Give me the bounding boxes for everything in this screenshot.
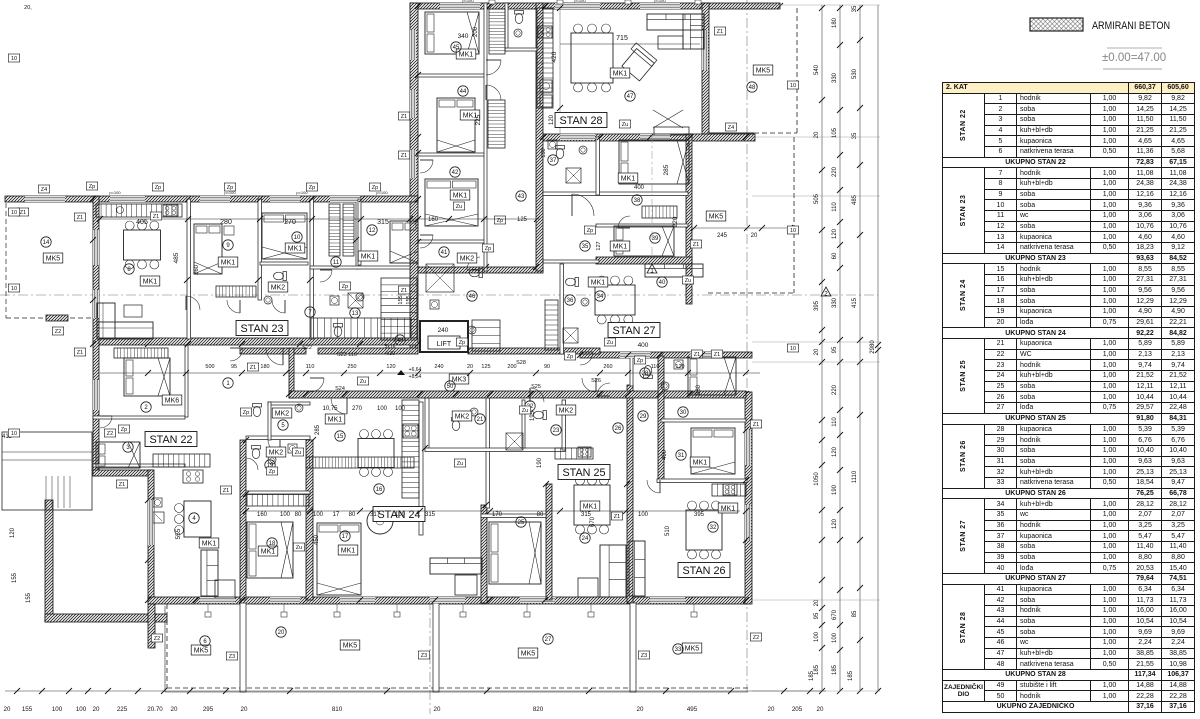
svg-text:50: 50 (447, 384, 454, 390)
svg-text:Z1: Z1 (153, 214, 159, 220)
svg-text:190: 190 (832, 484, 838, 495)
svg-text:MK5: MK5 (709, 214, 724, 221)
svg-text:130: 130 (541, 148, 547, 157)
svg-text:555: 555 (175, 528, 182, 539)
svg-text:100: 100 (814, 631, 820, 642)
svg-text:260: 260 (603, 364, 612, 370)
svg-text:100: 100 (395, 512, 406, 518)
svg-text:32: 32 (710, 525, 717, 531)
svg-text:Zu: Zu (622, 122, 628, 128)
svg-text:155: 155 (26, 592, 32, 603)
svg-text:110: 110 (832, 202, 838, 212)
svg-text:MK1: MK1 (288, 246, 303, 253)
svg-text:MK6: MK6 (165, 398, 180, 405)
svg-text:315: 315 (425, 512, 436, 518)
svg-text:100: 100 (313, 512, 324, 518)
svg-text:S24: S24 (335, 386, 345, 392)
svg-text:Z1: Z1 (401, 153, 407, 159)
svg-text:340: 340 (458, 33, 469, 40)
svg-text:330: 330 (832, 297, 838, 308)
svg-text:25: 25 (518, 520, 525, 526)
svg-text:280: 280 (220, 219, 232, 226)
svg-text:220: 220 (832, 166, 838, 177)
svg-text:Z1: Z1 (401, 288, 407, 294)
svg-text:820: 820 (533, 706, 544, 713)
svg-text:34: 34 (597, 294, 604, 300)
svg-text:27: 27 (545, 637, 552, 643)
svg-text:20: 20 (814, 348, 820, 355)
svg-text:20: 20 (814, 131, 820, 138)
svg-text:185: 185 (832, 664, 838, 675)
svg-text:STAN 26: STAN 26 (682, 565, 725, 577)
svg-text:11: 11 (333, 260, 340, 266)
svg-text:35: 35 (852, 5, 858, 12)
svg-text:MK1: MK1 (459, 52, 474, 59)
svg-text:STAN 27: STAN 27 (612, 325, 655, 337)
svg-text:120: 120 (832, 228, 838, 239)
svg-text:155: 155 (406, 295, 412, 304)
svg-text:105: 105 (832, 127, 838, 138)
svg-text:STAN 28: STAN 28 (559, 115, 602, 127)
svg-text:10: 10 (11, 56, 17, 62)
svg-text:+8,54: +8,54 (409, 374, 422, 380)
svg-text:MK2: MK2 (460, 256, 475, 263)
svg-text:42: 42 (452, 170, 459, 176)
svg-text:Z2: Z2 (55, 329, 61, 335)
svg-text:MK2: MK2 (559, 408, 574, 415)
svg-text:120: 120 (832, 446, 838, 457)
svg-text:31: 31 (678, 453, 685, 459)
svg-text:90: 90 (544, 364, 550, 370)
svg-text:MK1: MK1 (143, 279, 158, 286)
svg-text:155: 155 (22, 706, 33, 713)
svg-text:13: 13 (352, 311, 359, 317)
svg-text:670: 670 (832, 609, 838, 620)
svg-text:Z1: Z1 (77, 350, 83, 356)
svg-text:20: 20 (171, 706, 178, 713)
svg-text:Zu: Zu (360, 379, 366, 385)
svg-text:Zu: Zu (296, 545, 302, 551)
svg-text:Zp: Zp (485, 246, 491, 252)
svg-text:37: 37 (550, 158, 557, 164)
svg-text:220: 220 (672, 216, 679, 227)
svg-text:p=100: p=100 (654, 0, 666, 3)
svg-text:540: 540 (814, 64, 820, 75)
svg-text:Zu: Zu (456, 204, 462, 210)
svg-text:10: 10 (11, 431, 17, 437)
svg-text:S26: S26 (591, 378, 601, 384)
svg-text:16: 16 (376, 487, 383, 493)
svg-text:Z1: Z1 (714, 352, 720, 358)
svg-text:43: 43 (518, 194, 525, 200)
svg-text:26: 26 (615, 426, 622, 432)
svg-text:Z2: Z2 (753, 635, 759, 641)
svg-text:110: 110 (306, 364, 315, 370)
svg-text:MK2: MK2 (455, 414, 470, 421)
svg-text:Z3: Z3 (229, 654, 235, 660)
svg-text:MK1: MK1 (341, 548, 356, 555)
svg-text:Z2: Z2 (154, 636, 160, 642)
svg-text:STAN 22: STAN 22 (149, 434, 192, 446)
svg-text:Zu: Zu (522, 408, 528, 414)
svg-text:400: 400 (662, 449, 668, 460)
svg-text:MK1: MK1 (721, 506, 736, 513)
svg-text:Z3: Z3 (641, 653, 647, 659)
svg-text:20: 20 (241, 706, 248, 713)
svg-text:Zp: Zp (269, 469, 275, 475)
svg-text:Zp: Zp (155, 185, 161, 191)
svg-text:10: 10 (790, 83, 796, 89)
svg-text:MK2: MK2 (271, 285, 286, 292)
svg-text:17: 17 (333, 512, 340, 518)
svg-text:MK1: MK1 (693, 460, 708, 467)
svg-text:Zp: Zp (567, 354, 573, 360)
svg-text:100: 100 (76, 706, 87, 713)
svg-text:85: 85 (852, 610, 858, 617)
svg-text:10,75: 10,75 (322, 406, 338, 412)
svg-text:155: 155 (398, 295, 404, 304)
svg-text:505: 505 (814, 193, 820, 204)
svg-text:395: 395 (694, 512, 705, 518)
svg-text:285: 285 (663, 164, 670, 175)
svg-text:45: 45 (453, 45, 460, 51)
svg-text:Z2: Z2 (107, 431, 113, 437)
svg-text:120: 120 (832, 518, 838, 529)
svg-text:44: 44 (460, 89, 467, 95)
svg-text:S28: S28 (516, 360, 526, 366)
svg-text:41: 41 (441, 250, 448, 256)
svg-text:MK1: MK1 (328, 417, 343, 424)
svg-text:Z1: Z1 (717, 29, 723, 35)
svg-text:±0.00=47.00: ±0.00=47.00 (1102, 52, 1166, 64)
svg-text:500: 500 (205, 364, 214, 370)
svg-text:80: 80 (537, 512, 544, 518)
svg-text:Zp: Zp (309, 185, 315, 191)
svg-text:127: 127 (596, 241, 602, 250)
svg-text:10: 10 (294, 235, 301, 241)
svg-text:Zu: Zu (295, 450, 301, 456)
svg-text:60: 60 (832, 252, 838, 259)
svg-text:p=100: p=100 (224, 190, 236, 195)
svg-text:510: 510 (665, 525, 671, 536)
svg-text:220: 220 (832, 384, 838, 395)
svg-text:MK1: MK1 (613, 71, 628, 78)
svg-text:MK1: MK1 (202, 541, 217, 548)
svg-text:21: 21 (477, 417, 484, 423)
svg-text:MK2: MK2 (269, 450, 284, 457)
svg-text:715: 715 (616, 35, 628, 42)
svg-text:14: 14 (43, 240, 50, 246)
svg-text:395: 395 (814, 300, 820, 311)
svg-text:330: 330 (832, 72, 838, 83)
svg-text:20: 20 (637, 706, 644, 713)
svg-text:30: 30 (680, 410, 687, 416)
svg-text:185: 185 (848, 670, 854, 681)
svg-text:S25: S25 (531, 384, 541, 390)
svg-text:10: 10 (790, 228, 796, 234)
svg-text:Z1: Z1 (753, 422, 759, 428)
svg-text:Z1: Z1 (20, 210, 26, 216)
svg-text:Z1: Z1 (614, 514, 620, 520)
svg-text:MK5: MK5 (685, 646, 700, 653)
svg-text:205: 205 (792, 706, 803, 713)
svg-text:100: 100 (638, 512, 649, 518)
svg-text:20: 20 (467, 364, 473, 370)
svg-text:160: 160 (257, 512, 268, 518)
svg-text:1110: 1110 (852, 470, 858, 483)
svg-text:100: 100 (52, 706, 63, 713)
svg-text:Zp: Zp (587, 228, 593, 234)
svg-text:p=100: p=100 (574, 0, 586, 3)
svg-text:5x16: 5x16 (385, 344, 396, 350)
svg-text:49: 49 (397, 338, 404, 344)
svg-text:240: 240 (438, 327, 449, 334)
svg-text:400: 400 (634, 185, 645, 191)
svg-text:110: 110 (832, 417, 838, 427)
svg-text:4/30: 4/30 (385, 351, 395, 357)
svg-text:405: 405 (136, 219, 148, 226)
svg-text:Z1: Z1 (77, 215, 83, 221)
svg-text:17: 17 (342, 534, 349, 540)
svg-text:MK5: MK5 (194, 648, 209, 655)
svg-text:317: 317 (370, 512, 381, 518)
svg-text:1050: 1050 (814, 472, 820, 486)
svg-text:20.70: 20.70 (147, 706, 163, 713)
svg-text:46: 46 (469, 294, 476, 300)
svg-text:20,: 20, (24, 5, 32, 11)
svg-text:95: 95 (814, 612, 820, 619)
svg-text:270: 270 (284, 219, 296, 226)
svg-text:110: 110 (651, 364, 660, 370)
svg-text:285: 285 (315, 424, 321, 435)
svg-text:Zp: Zp (637, 358, 643, 364)
svg-text:80: 80 (349, 512, 356, 518)
svg-text:24: 24 (582, 536, 589, 542)
svg-text:+6,64: +6,64 (409, 367, 422, 373)
svg-text:39: 39 (652, 236, 659, 242)
svg-text:MK2: MK2 (275, 411, 290, 418)
svg-text:MK1: MK1 (453, 193, 468, 200)
svg-text:MK1: MK1 (221, 260, 236, 267)
svg-text:185: 185 (809, 670, 815, 681)
svg-text:Zp: Zp (243, 410, 249, 416)
svg-text:120: 120 (675, 364, 684, 370)
svg-text:12: 12 (369, 228, 376, 234)
svg-text:100: 100 (832, 632, 838, 643)
svg-text:Z4: Z4 (728, 125, 734, 131)
svg-text:Zu: Zu (607, 340, 613, 346)
svg-text:p=100: p=100 (376, 190, 388, 195)
svg-text:S23 110: S23 110 (337, 352, 357, 358)
svg-text:47: 47 (627, 94, 634, 100)
svg-text:28: 28 (642, 371, 649, 377)
svg-text:240: 240 (434, 364, 443, 370)
svg-text:20: 20 (4, 706, 11, 713)
svg-text:260: 260 (194, 264, 200, 275)
svg-text:100: 100 (280, 512, 291, 518)
svg-text:250: 250 (347, 364, 356, 370)
svg-text:33: 33 (675, 647, 682, 653)
svg-text:MK5: MK5 (521, 651, 536, 658)
svg-text:450: 450 (314, 534, 320, 545)
svg-text:Z1: Z1 (401, 114, 407, 120)
svg-text:190: 190 (537, 457, 543, 468)
svg-text:100: 100 (395, 406, 406, 412)
svg-text:315: 315 (377, 219, 389, 226)
svg-text:18: 18 (269, 541, 276, 547)
svg-text:245: 245 (717, 233, 728, 239)
svg-text:p=100: p=100 (462, 0, 474, 3)
svg-text:Zp: Zp (459, 340, 465, 346)
svg-text:Zp: Zp (342, 284, 348, 290)
svg-text:Z1: Z1 (693, 242, 699, 248)
svg-text:225: 225 (475, 114, 482, 125)
svg-text:MK5: MK5 (756, 68, 771, 75)
svg-text:2980: 2980 (870, 340, 876, 354)
svg-text:225: 225 (117, 706, 128, 713)
svg-text:20: 20 (768, 706, 775, 713)
svg-text:415: 415 (852, 297, 858, 308)
svg-text:380: 380 (696, 384, 702, 395)
svg-text:95: 95 (231, 364, 237, 370)
svg-text:485: 485 (173, 252, 180, 263)
svg-text:20: 20 (434, 706, 441, 713)
svg-text:670: 670 (590, 516, 596, 527)
svg-text:MK1: MK1 (361, 254, 376, 261)
svg-text:36: 36 (567, 298, 574, 304)
svg-text:10: 10 (790, 346, 796, 352)
svg-text:20: 20 (93, 706, 100, 713)
svg-text:180: 180 (260, 364, 269, 370)
svg-text:10: 10 (11, 210, 17, 216)
svg-text:80: 80 (295, 512, 302, 518)
svg-text:Zp: Zp (121, 427, 127, 433)
svg-text:35: 35 (582, 244, 589, 250)
svg-text:120: 120 (10, 527, 16, 538)
svg-text:40: 40 (659, 280, 666, 286)
svg-text:120: 120 (386, 364, 395, 370)
svg-text:420: 420 (551, 51, 558, 62)
svg-text:Z3: Z3 (421, 653, 427, 659)
svg-text:Z1: Z1 (694, 352, 700, 358)
svg-text:MK1: MK1 (591, 280, 606, 287)
svg-text:Z1: Z1 (250, 365, 256, 371)
svg-text:p=100: p=100 (109, 190, 121, 195)
svg-text:Zp: Zp (89, 184, 95, 190)
svg-text:100: 100 (377, 406, 388, 412)
svg-text:35: 35 (852, 132, 858, 139)
svg-text:495: 495 (687, 706, 698, 713)
svg-text:120: 120 (549, 114, 555, 125)
svg-text:200: 200 (473, 26, 479, 37)
svg-text:S22: S22 (302, 345, 312, 351)
svg-text:400: 400 (638, 342, 649, 349)
svg-text:125: 125 (481, 364, 490, 370)
svg-text:29: 29 (640, 414, 647, 420)
svg-text:MK5: MK5 (343, 643, 358, 650)
svg-text:38: 38 (634, 198, 641, 204)
svg-text:295: 295 (203, 706, 214, 713)
svg-text:ARMIRANI BETON: ARMIRANI BETON (1092, 20, 1170, 32)
svg-text:20: 20 (751, 233, 758, 239)
svg-text:160: 160 (428, 217, 439, 223)
svg-text:STAN 23: STAN 23 (240, 323, 283, 335)
svg-text:LIFT: LIFT (437, 341, 452, 348)
svg-text:48: 48 (749, 85, 756, 91)
svg-text:MK1: MK1 (583, 504, 598, 511)
svg-text:810: 810 (332, 706, 343, 713)
svg-text:MK1: MK1 (621, 176, 636, 183)
svg-text:170: 170 (492, 512, 503, 518)
svg-text:125: 125 (517, 217, 528, 223)
svg-text:20: 20 (278, 630, 285, 636)
svg-text:180: 180 (832, 17, 838, 28)
svg-text:MK5: MK5 (46, 256, 61, 263)
svg-text:10: 10 (11, 286, 17, 292)
svg-text:STAN 25: STAN 25 (562, 467, 605, 479)
svg-text:20: 20 (817, 706, 824, 713)
svg-text:Z4: Z4 (41, 187, 47, 193)
svg-text:95: 95 (832, 346, 838, 353)
svg-text:p=100: p=100 (296, 190, 308, 195)
svg-text:155: 155 (12, 572, 18, 583)
svg-text:270: 270 (352, 406, 363, 412)
svg-text:Z1: Z1 (223, 488, 229, 494)
svg-text:Zu: Zu (457, 461, 463, 467)
svg-text:530: 530 (852, 68, 858, 79)
svg-text:MK1: MK1 (613, 244, 628, 251)
svg-text:Z1: Z1 (119, 482, 125, 488)
svg-text:Zu: Zu (685, 278, 691, 284)
svg-text:MK1: MK1 (261, 549, 276, 556)
svg-text:15: 15 (337, 434, 344, 440)
svg-text:23: 23 (553, 428, 560, 434)
